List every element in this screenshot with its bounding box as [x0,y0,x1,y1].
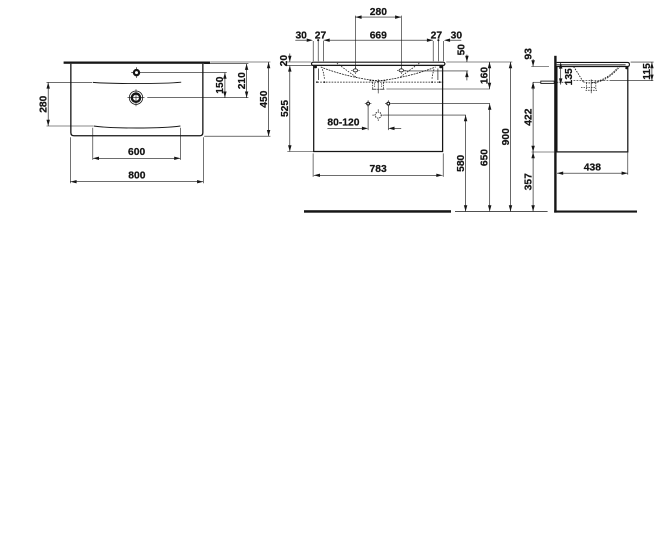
svg-text:80-120: 80-120 [327,118,359,129]
svg-text:30: 30 [295,30,307,41]
svg-text:450: 450 [259,90,270,107]
svg-text:30: 30 [451,30,463,41]
svg-text:600: 600 [128,147,145,158]
svg-text:783: 783 [370,164,387,175]
svg-text:525: 525 [280,100,291,117]
svg-text:50: 50 [457,44,468,56]
svg-text:20: 20 [279,55,290,67]
svg-text:357: 357 [523,173,534,190]
svg-text:280: 280 [370,7,387,18]
svg-text:27: 27 [315,30,327,41]
svg-text:438: 438 [584,162,601,173]
svg-text:280: 280 [39,95,50,112]
svg-text:800: 800 [128,170,145,181]
svg-text:93: 93 [523,48,534,60]
svg-text:115: 115 [642,63,653,80]
svg-text:669: 669 [370,30,387,41]
svg-text:135: 135 [564,68,575,85]
svg-text:650: 650 [479,149,490,166]
svg-text:580: 580 [456,154,467,171]
svg-text:27: 27 [431,30,443,41]
svg-text:150: 150 [215,76,226,93]
svg-text:160: 160 [479,67,490,84]
svg-text:210: 210 [237,72,248,89]
svg-text:900: 900 [501,128,512,145]
svg-text:422: 422 [523,108,534,125]
